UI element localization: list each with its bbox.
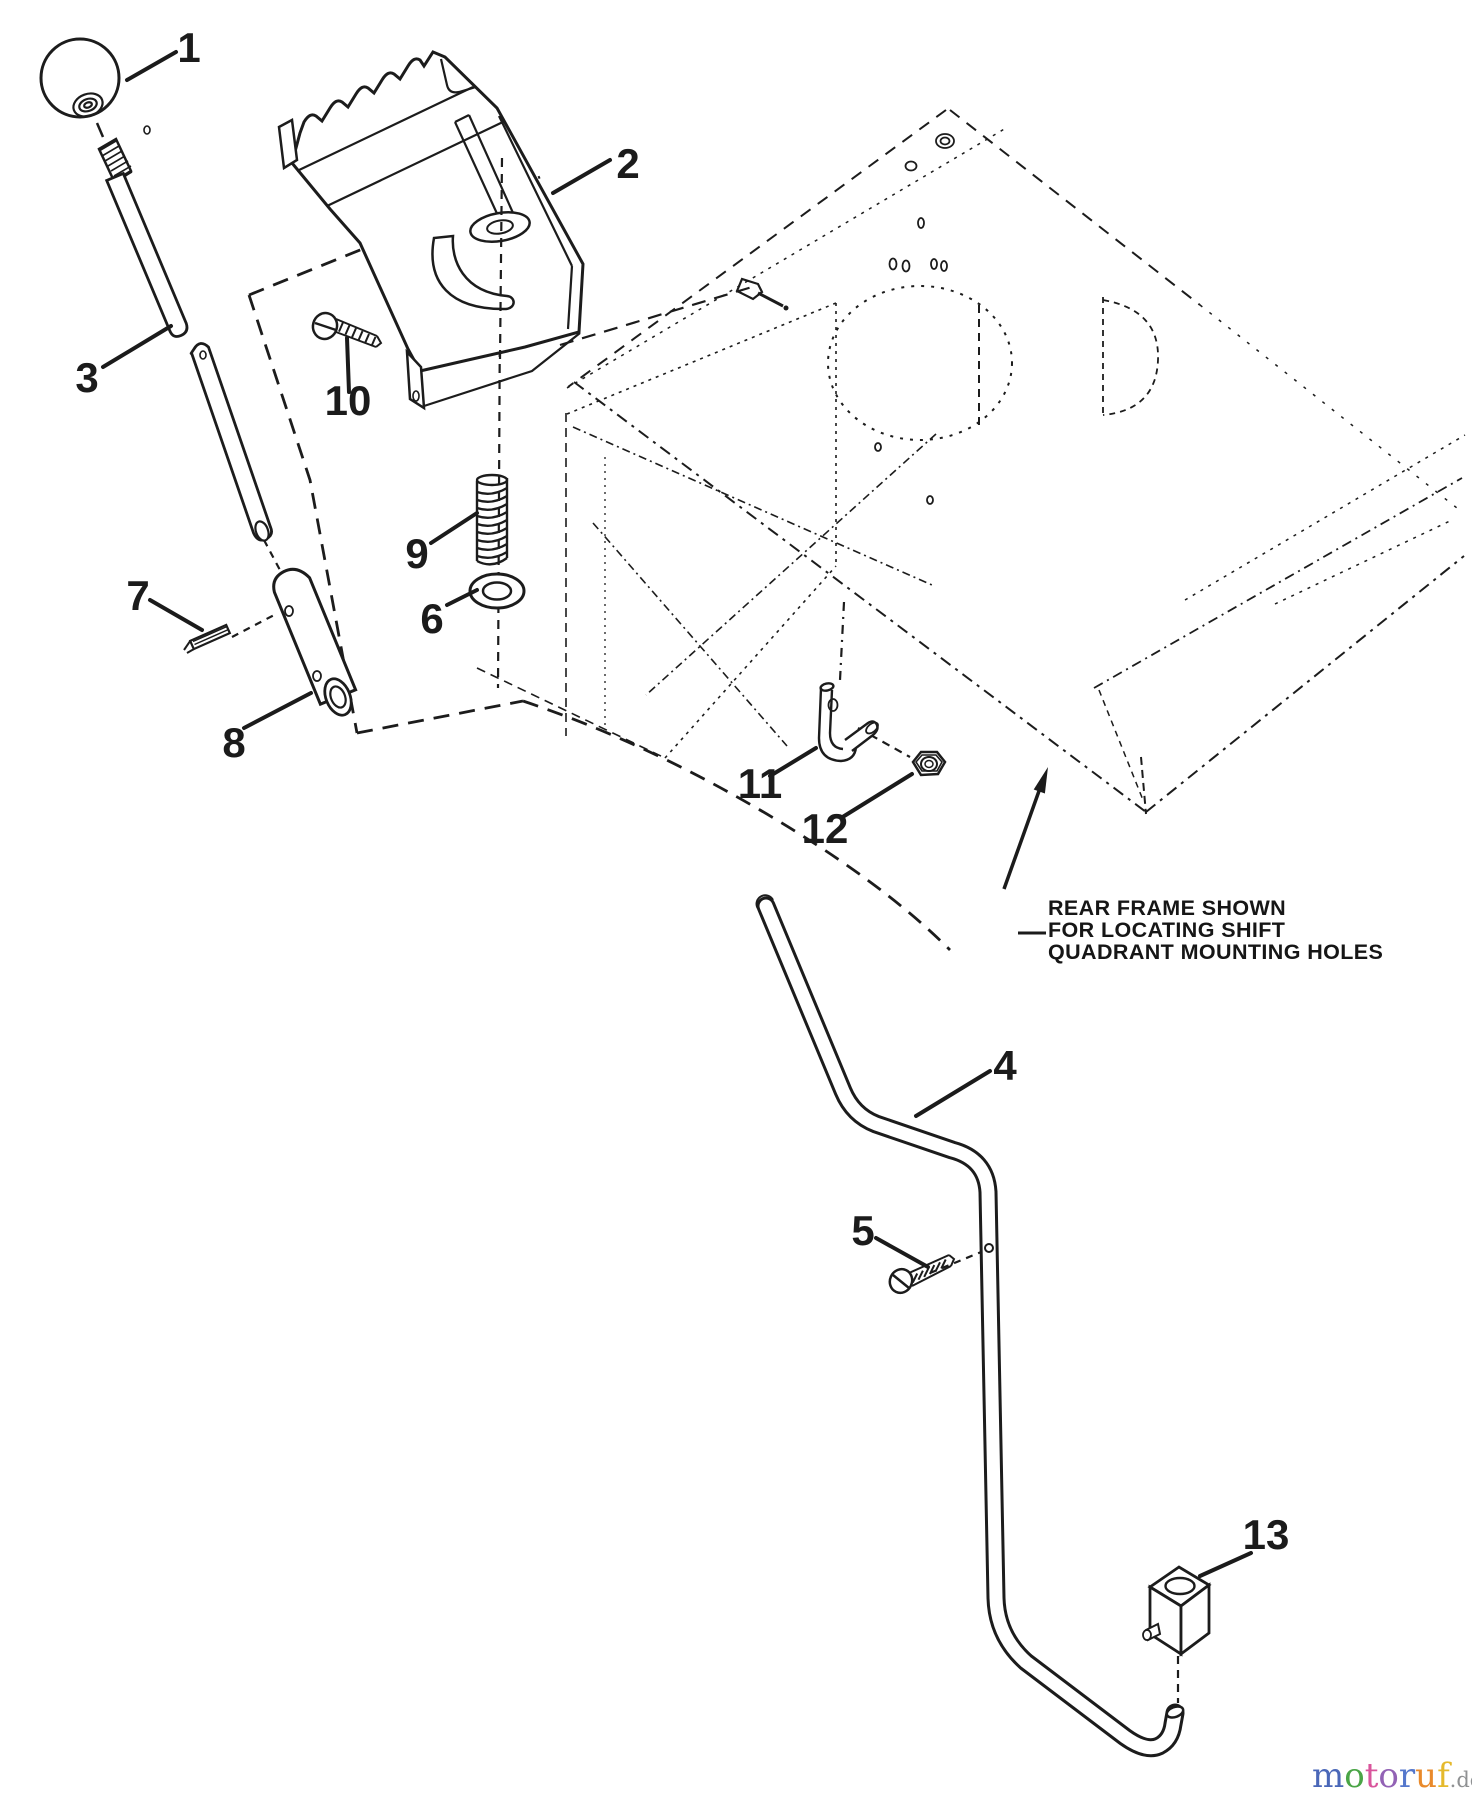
watermark-letter: m	[1312, 1756, 1344, 1796]
callout-labels: 1 2 3 4 5 6 7 8 9 10 11 12 13	[75, 24, 1289, 1558]
svg-text:motoruf.de: motoruf.de	[1312, 1756, 1472, 1796]
quadrant-left-tab	[279, 120, 297, 168]
leader-4	[916, 1071, 990, 1116]
trunnion-block-part	[1143, 1567, 1209, 1654]
watermark-letter: o	[1378, 1756, 1398, 1796]
annotation-line-2: FOR LOCATING SHIFT	[1048, 918, 1285, 942]
rear-frame-outline	[560, 110, 1465, 814]
annotation-text: REAR FRAME SHOWN FOR LOCATING SHIFT QUAD…	[1048, 896, 1383, 964]
rod-screw-hole	[985, 1244, 993, 1252]
callout-label-11: 11	[738, 760, 782, 807]
j-clip-part	[819, 682, 880, 761]
upper-shift-lever-part	[99, 126, 272, 542]
shift-knob-part	[41, 39, 119, 120]
exploded-diagram-canvas: 1 2 3 4 5 6 7 8 9 10 11 12 13 REAR FRAME…	[0, 0, 1472, 1800]
frame-clip	[737, 279, 789, 311]
callout-label-3: 3	[75, 354, 98, 401]
alignment-line-medium	[560, 287, 752, 345]
callout-label-6: 6	[420, 595, 443, 642]
callout-label-12: 12	[802, 805, 849, 852]
callout-label-8: 8	[222, 719, 245, 766]
watermark-letter: t	[1365, 1756, 1379, 1796]
callout-label-10: 10	[325, 377, 372, 424]
watermark-suffix: .de	[1450, 1768, 1472, 1792]
leader-7	[150, 600, 202, 630]
watermark-letter: r	[1399, 1756, 1416, 1796]
frame-side-hole	[1103, 300, 1158, 415]
assembly-centerlines	[97, 123, 1178, 1703]
lower-shift-rod-part	[757, 895, 1185, 1747]
leader-5	[876, 1238, 928, 1267]
leader-9	[431, 513, 477, 543]
watermark-letter: o	[1344, 1756, 1364, 1796]
frame-mounting-holes	[875, 134, 954, 504]
leader-2	[553, 160, 610, 193]
leader-8	[244, 693, 311, 728]
leader-12	[841, 774, 912, 818]
callout-label-13: 13	[1243, 1511, 1290, 1558]
annotation-line-1: REAR FRAME SHOWN	[1048, 896, 1286, 920]
hex-nut-part	[913, 752, 945, 775]
callout-label-7: 7	[126, 572, 149, 619]
compression-spring-part	[477, 475, 507, 564]
pivot-sleeve-part	[274, 569, 357, 719]
callout-label-4: 4	[993, 1042, 1017, 1089]
transaxle-outline	[477, 303, 936, 758]
frame-large-hole	[828, 286, 1012, 440]
callout-label-2: 2	[616, 140, 639, 187]
watermark-letter: u	[1415, 1756, 1437, 1796]
callout-label-1: 1	[177, 24, 200, 71]
callout-label-5: 5	[851, 1207, 874, 1254]
leader-1	[127, 52, 176, 80]
annotation-arrow	[1004, 767, 1048, 933]
block-hole	[1166, 1578, 1195, 1594]
parts-diagram-page: 1 2 3 4 5 6 7 8 9 10 11 12 13 REAR FRAME…	[0, 0, 1472, 1800]
callout-label-9: 9	[405, 530, 428, 577]
leader-3	[103, 326, 171, 367]
shift-quadrant-part	[279, 52, 583, 408]
roll-pin-part	[184, 625, 230, 653]
leader-lines	[103, 52, 1251, 1576]
watermark-link[interactable]: motoruf.de	[1312, 1756, 1472, 1796]
annotation-line-3: QUADRANT MOUNTING HOLES	[1048, 940, 1383, 964]
